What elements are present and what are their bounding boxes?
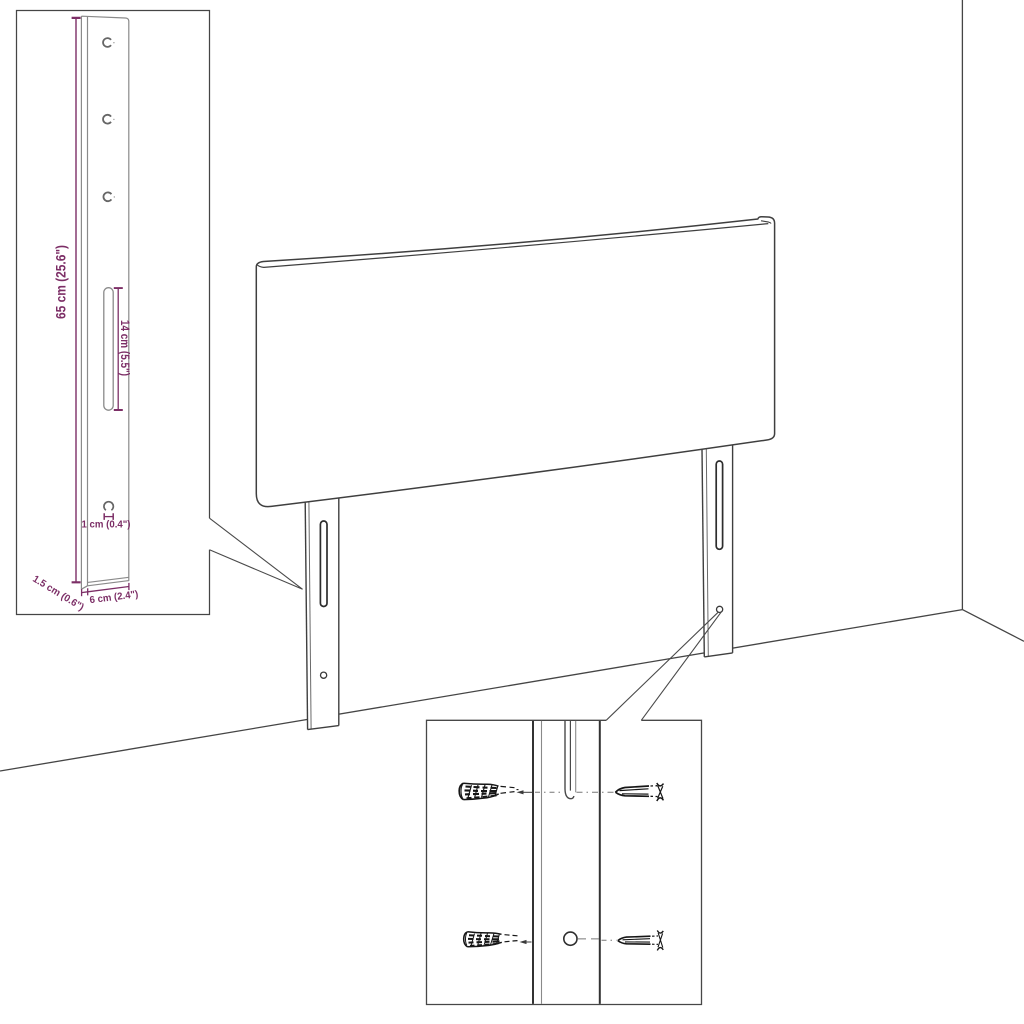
svg-text:65 cm (25.6"): 65 cm (25.6") xyxy=(53,245,69,319)
svg-text:1 cm (0.4"): 1 cm (0.4") xyxy=(82,520,131,531)
svg-text:14 cm (5.5"): 14 cm (5.5") xyxy=(118,320,130,376)
